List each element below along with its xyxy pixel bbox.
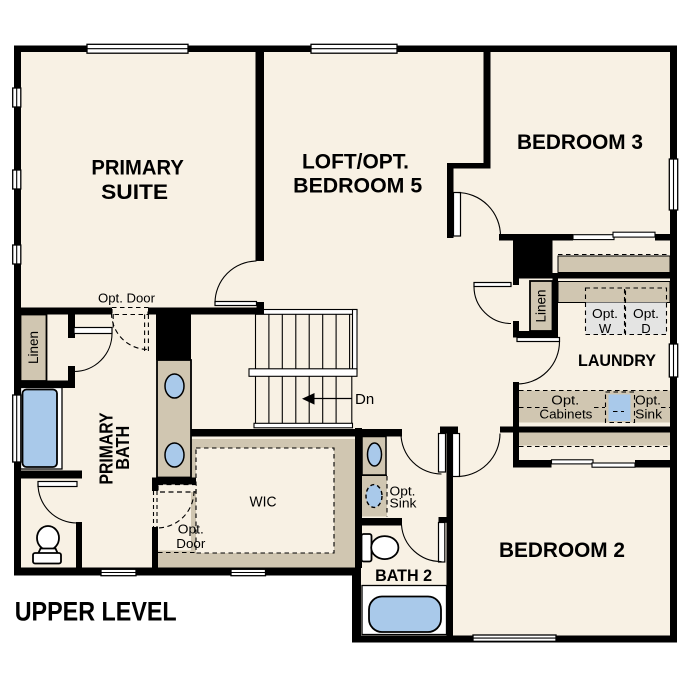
svg-text:Opt. Door: Opt. Door	[98, 291, 156, 306]
svg-text:W: W	[599, 321, 612, 336]
svg-text:Dn: Dn	[355, 391, 374, 408]
svg-text:Opt.: Opt.	[592, 306, 618, 321]
svg-text:SUITE: SUITE	[101, 181, 168, 204]
svg-text:D: D	[641, 321, 650, 336]
svg-text:Linen: Linen	[534, 289, 549, 322]
svg-text:Linen: Linen	[26, 331, 41, 364]
svg-text:UPPER LEVEL: UPPER LEVEL	[15, 596, 177, 626]
svg-text:BATH: BATH	[112, 426, 133, 470]
svg-text:Sink: Sink	[635, 407, 663, 422]
svg-text:Opt.: Opt.	[551, 393, 579, 408]
svg-text:Door: Door	[176, 536, 206, 551]
svg-text:BATH 2: BATH 2	[375, 566, 432, 585]
svg-text:Opt.: Opt.	[635, 393, 661, 408]
svg-text:Sink: Sink	[390, 496, 418, 511]
svg-text:LOFT/OPT.: LOFT/OPT.	[302, 151, 409, 174]
svg-text:Cabinets: Cabinets	[539, 407, 593, 422]
svg-text:Opt.: Opt.	[178, 522, 204, 537]
svg-text:LAUNDRY: LAUNDRY	[578, 352, 656, 370]
svg-text:BEDROOM 3: BEDROOM 3	[517, 131, 643, 154]
svg-text:PRIMARY: PRIMARY	[91, 157, 184, 180]
svg-text:BEDROOM 5: BEDROOM 5	[293, 175, 422, 198]
svg-text:WIC: WIC	[250, 494, 277, 511]
svg-text:Opt.: Opt.	[633, 306, 659, 321]
svg-text:BEDROOM 2: BEDROOM 2	[499, 539, 625, 562]
